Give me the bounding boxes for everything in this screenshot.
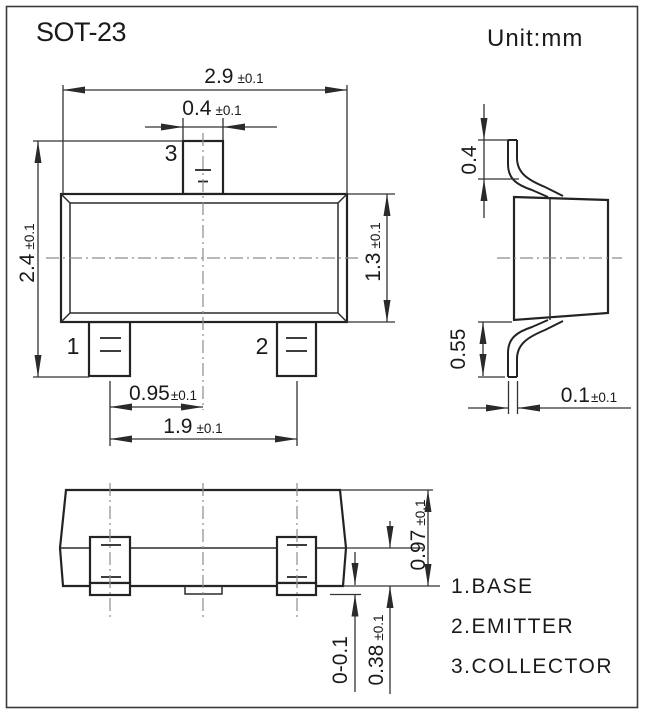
pin3-number: 3	[161, 141, 181, 165]
unit-label: Unit:mm	[487, 25, 583, 53]
dim-body-width: 2.9±0.1	[174, 65, 294, 89]
legend-item-base: 1.BASE	[451, 575, 534, 599]
pin1-number: 1	[63, 334, 83, 358]
dim-lead-pitch: 0.95±0.1	[103, 382, 223, 406]
dim-standoff: 0-0.1	[329, 600, 353, 715]
outline-drawing	[0, 0, 645, 715]
side-lead-bottom	[508, 320, 563, 377]
dim-body-height: 0.97±0.1	[407, 475, 431, 595]
package-title: SOT-23	[36, 17, 126, 48]
dim-lead-thickness: 0.1±0.1	[529, 384, 645, 408]
dim-lead-bottom-height: 0.55	[447, 289, 471, 409]
legend-item-collector: 3.COLLECTOR	[451, 655, 613, 679]
dim-lead3-width: 0.4±0.1	[152, 97, 272, 121]
pin1-lead	[89, 322, 130, 376]
side-view	[468, 104, 631, 414]
drawing-page: SOT-23 Unit:mm 2.9±0.1 0.4±0.1 2.4±0.1 1…	[0, 0, 645, 715]
dim-lead-span: 1.9±0.1	[133, 415, 253, 439]
side-lead-top	[508, 140, 563, 197]
pin2-lead	[277, 322, 316, 376]
legend-item-emitter: 2.EMITTER	[451, 615, 574, 639]
dim-base-height: 0.38±0.1	[365, 590, 389, 710]
dim-overall-width: 2.4±0.1	[16, 193, 40, 313]
pin2-number: 2	[252, 334, 272, 358]
dim-body-depth: 1.3±0.1	[362, 192, 386, 312]
dim-lead-top-height: 0.4	[458, 100, 482, 220]
